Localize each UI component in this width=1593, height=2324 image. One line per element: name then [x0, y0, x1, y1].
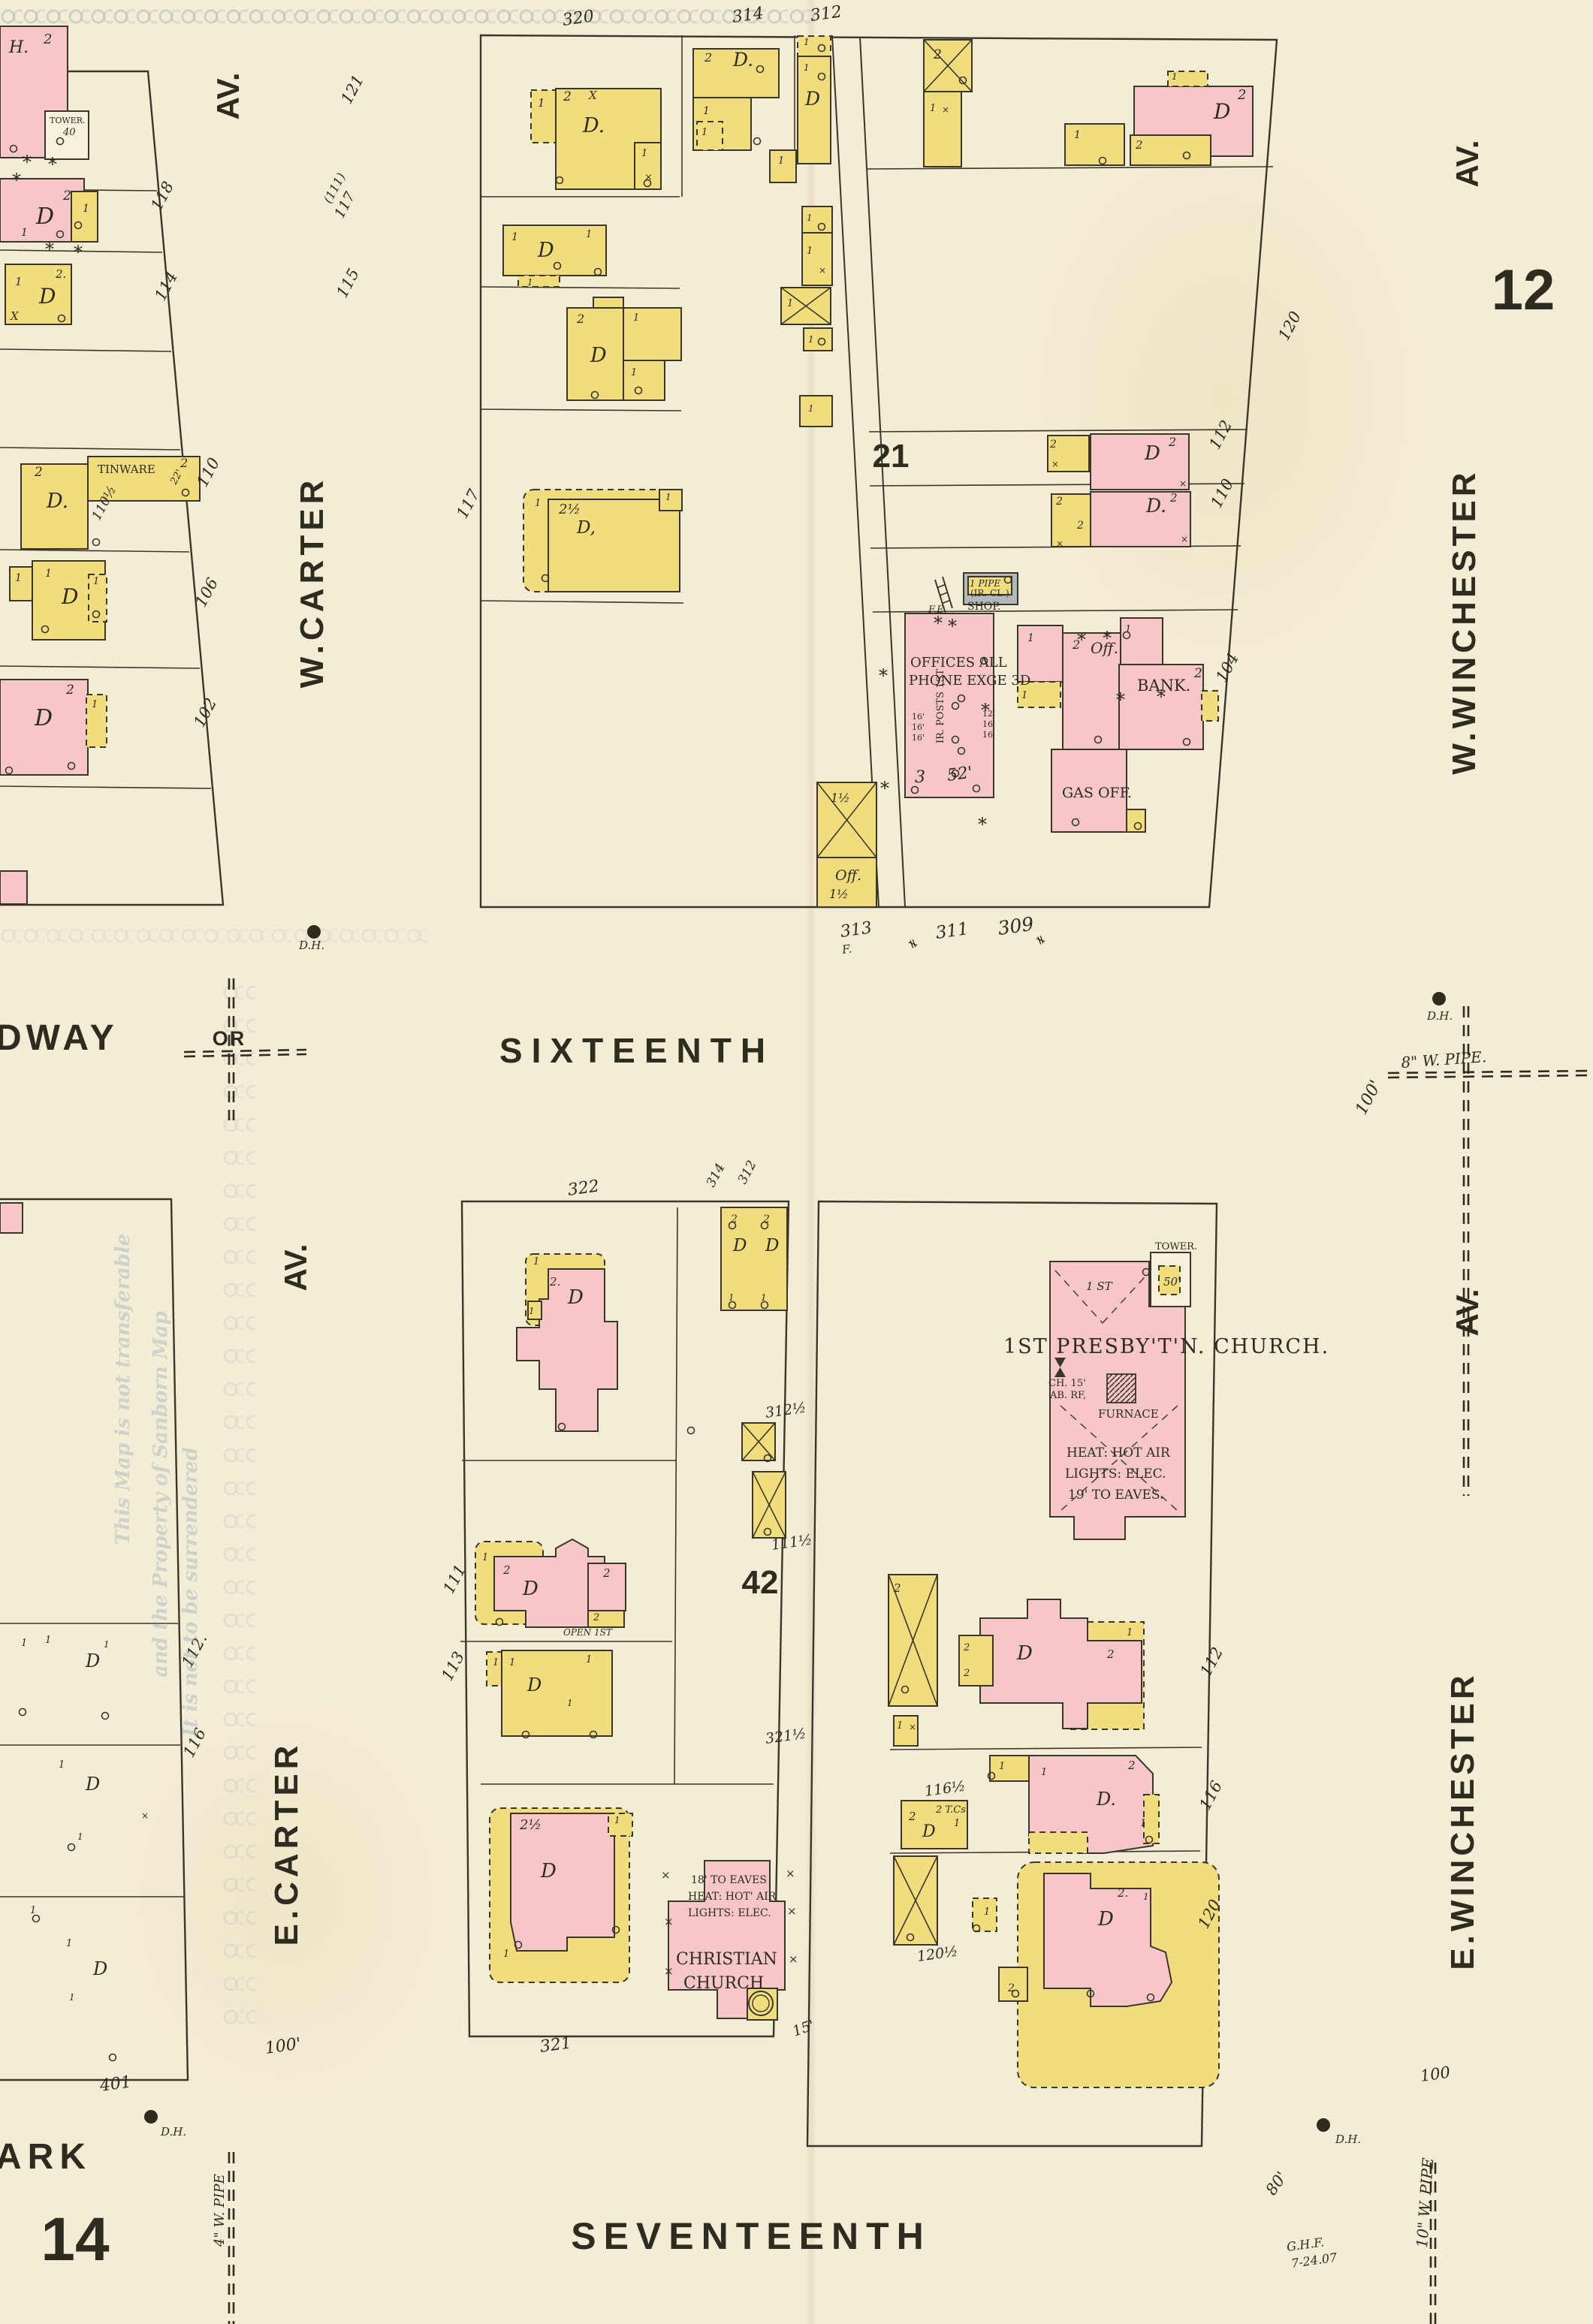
map-annotation: PHONE EXGE 3D: [909, 673, 1030, 689]
building-label: 1: [665, 492, 671, 502]
building-label: 2: [1106, 1647, 1115, 1661]
lot-number: 120: [1275, 309, 1305, 344]
lot-number: 321: [539, 2033, 572, 2057]
street-label: AV.: [1450, 1289, 1485, 1336]
ghost-text: It is not to be surrendered: [180, 1447, 202, 1738]
chimney-circle: [688, 1427, 695, 1434]
map-annotation: 19' TO EAVES.: [1068, 1488, 1163, 1503]
building: [593, 297, 623, 308]
map-annotation: 2: [1193, 666, 1202, 681]
building-label: 1: [567, 1698, 573, 1708]
lot-line: [890, 1747, 1202, 1750]
building-label: 1: [778, 155, 784, 167]
lot-number: 116: [1196, 1778, 1226, 1813]
map-annotation: (IR. CL.): [970, 588, 1009, 598]
page-number: 12: [1492, 258, 1555, 322]
building-label: 1: [69, 1992, 75, 2003]
map-annotation: 18' TO EAVES: [691, 1874, 767, 1886]
building-label: 1: [45, 1635, 51, 1646]
map-annotation: 16': [982, 730, 995, 740]
building-label: 1: [104, 1639, 110, 1650]
building-label: 1: [535, 498, 541, 509]
map-annotation: 2 T.Cs.: [935, 1804, 969, 1816]
building-label: 1: [897, 1720, 903, 1732]
hydrant-dot: [1432, 992, 1446, 1005]
building-label: D: [92, 1958, 107, 1979]
map-annotation: D.H.: [1426, 1009, 1453, 1023]
building-label: D: [804, 88, 820, 110]
map-annotation: OPEN 1ST: [563, 1627, 613, 1638]
hydrant-dot: [144, 2110, 158, 2124]
building-label: 1: [92, 699, 98, 710]
lot-number: 116½: [924, 1778, 967, 1800]
post-mark: *: [48, 154, 57, 175]
building-label: D: [34, 705, 53, 731]
building-label: 2: [593, 1612, 599, 1623]
building-label: 1: [1140, 1818, 1146, 1829]
lot-number: 311: [934, 919, 970, 943]
lot-number: 114: [151, 269, 181, 304]
building-label: D.: [582, 114, 605, 137]
lot-number: 314: [731, 4, 765, 27]
map-annotation: 8" W. PIPE.: [1401, 1047, 1487, 1072]
map-annotation: LIGHTS: ELEC.: [1065, 1466, 1166, 1482]
lot-number: 100': [1352, 1078, 1386, 1118]
map-annotation: IR. POSTS 1ST: [935, 669, 946, 743]
map-annotation: 16': [912, 712, 925, 722]
page-number: 21: [873, 438, 910, 475]
lot-line: [481, 287, 680, 288]
hydrant-dot: [1317, 2118, 1330, 2132]
building-label: 1: [1027, 632, 1034, 644]
post-mark: *: [45, 239, 54, 260]
building-label: ×: [942, 104, 949, 115]
building-label: 1: [804, 37, 810, 47]
building-label: ×: [1179, 478, 1187, 489]
building-label: 2: [62, 188, 71, 203]
building-label: 1: [30, 1905, 36, 1916]
building-label: 1: [45, 568, 52, 580]
street-label: OR: [213, 1027, 246, 1050]
building: [71, 191, 98, 242]
post-mark: *: [1103, 628, 1112, 649]
building-label: ×: [819, 265, 826, 276]
lot-number: 112: [1196, 1644, 1226, 1680]
building-label: 2½: [519, 1817, 542, 1833]
building-label: 2: [1076, 520, 1084, 532]
building: [608, 1813, 632, 1836]
building-label: 1: [83, 203, 89, 215]
lot-line: [481, 601, 683, 603]
chimney-circle: [20, 1709, 26, 1716]
lot-number: 100': [264, 2034, 302, 2057]
building-label: 2.: [55, 267, 66, 281]
lot-number: 104: [1212, 650, 1242, 686]
building-label: D.: [732, 49, 753, 71]
building-label: 1: [527, 277, 533, 288]
lot-number: 113: [438, 1649, 468, 1684]
lot-number: 309: [997, 913, 1035, 939]
lot-number: 80': [1262, 2168, 1290, 2198]
building-label: 1: [15, 275, 23, 288]
building: [511, 1813, 614, 1951]
chimney-circle: [754, 138, 761, 145]
post-mark: *: [948, 616, 957, 637]
wall-x-mark: ×: [664, 1915, 674, 1928]
building-label: 1: [1143, 1891, 1149, 1902]
water-pipe-line: [184, 1054, 306, 1057]
wall-x-mark: ×: [786, 1867, 795, 1880]
lot-number: 312: [809, 2, 843, 26]
lot-line: [869, 430, 1247, 432]
map-annotation: TOWER.: [50, 116, 85, 125]
street-label: W.WINCHESTER: [1446, 469, 1483, 774]
map-annotation: 1 ST: [1086, 1280, 1113, 1293]
street-label: AV.: [278, 1243, 313, 1291]
building-label: 1: [808, 334, 814, 345]
building-label: D: [1097, 1908, 1114, 1931]
lot-line: [873, 610, 1238, 612]
map-annotation: 40: [62, 127, 76, 138]
lot-number: 15': [790, 2017, 816, 2040]
building: [518, 276, 560, 287]
map-annotation: Off.: [835, 867, 861, 884]
building-label: 2: [762, 1213, 770, 1225]
lot-line: [0, 349, 171, 351]
water-pipe-line: [1388, 1071, 1593, 1073]
building-label: H.: [8, 38, 29, 57]
building-label: 1: [807, 246, 813, 257]
map-annotation: 1ST PRESBY'T'N. CHURCH.: [1003, 1335, 1329, 1358]
map-annotation: 4" W. PIPE: [212, 2174, 228, 2247]
building-label: 1: [482, 1552, 488, 1563]
building-label: 1: [509, 1657, 515, 1668]
building-label: D: [522, 1578, 539, 1600]
water-pipe-line: [184, 1050, 306, 1052]
map-annotation: 1½: [829, 887, 849, 901]
ladder-rung: [937, 585, 945, 588]
lot-number: F.: [840, 942, 852, 957]
building-label: D.: [1096, 1789, 1116, 1810]
map-annotation: D.H.: [298, 939, 324, 952]
building-label: D: [35, 203, 54, 230]
building-label: 2: [1055, 496, 1063, 508]
building-label: 1: [493, 1657, 499, 1668]
post-mark: *: [1077, 629, 1086, 650]
building-label: 2: [963, 1668, 970, 1679]
building-label: 1: [808, 403, 814, 414]
map-annotation: 1½: [831, 791, 850, 805]
building-label: 2: [908, 1810, 916, 1823]
post-mark: *: [879, 665, 888, 686]
building-label: 1: [511, 231, 518, 243]
building-label: D,: [576, 518, 596, 538]
lot-line: [0, 666, 200, 668]
sanborn-map-sheet: SIXTEENTHSEVENTEENTHDWAYARKORAV.W.CARTER…: [0, 0, 1593, 2324]
building-label: 1: [787, 298, 793, 309]
lot-number: 321½: [765, 1726, 807, 1747]
ghost-text: This Map is not transferable: [112, 1234, 134, 1545]
post-mark: *: [23, 152, 32, 173]
building-label: 1: [984, 1907, 990, 1918]
hydrant-dot: [307, 925, 321, 939]
building-label: D: [1016, 1642, 1033, 1665]
street-label: DWAY: [0, 1018, 119, 1058]
building-label: 1: [77, 1831, 83, 1842]
building-label: 2: [1127, 1759, 1136, 1772]
building-label: 1: [586, 1654, 592, 1665]
wall-x-mark: ×: [787, 1904, 797, 1918]
map-annotation: TINWARE: [98, 463, 155, 476]
building-label: 2: [502, 1563, 511, 1577]
chimney-circle: [110, 2054, 116, 2061]
building-label: D: [537, 239, 554, 262]
street-label: SIXTEENTH: [499, 1031, 774, 1070]
building-label: 1: [586, 229, 592, 240]
chimney-circle: [102, 1713, 109, 1720]
furnace-symbol: [1107, 1374, 1136, 1403]
building-label: D.: [46, 490, 68, 513]
building: [798, 56, 831, 164]
building-label: 2: [933, 47, 942, 62]
building-label: 1: [1127, 1627, 1133, 1638]
map-annotation: 1 PIPE: [970, 578, 1000, 589]
map-annotation: CHRISTIAN: [676, 1950, 777, 1969]
map-annotation: 16': [912, 722, 925, 732]
building-label: 1: [930, 103, 936, 114]
building-label: 2.: [1117, 1886, 1128, 1900]
building: [1029, 1832, 1088, 1853]
building-label: 1: [729, 1292, 735, 1303]
building-label: 1: [1074, 129, 1081, 141]
building: [0, 1203, 23, 1233]
building-label: 2: [963, 1642, 970, 1653]
building-label: 1: [614, 1815, 620, 1825]
chimney-circle: [93, 539, 100, 546]
map-annotation: GAS OFF.: [1062, 785, 1132, 801]
building-label: 2: [1135, 138, 1143, 152]
lot-number: 312½: [765, 1400, 807, 1421]
building-label: ×: [1181, 534, 1188, 544]
building-label: D: [590, 344, 607, 367]
page-number: 42: [742, 1564, 779, 1601]
building-label: X: [588, 89, 598, 102]
building-label: 2: [563, 89, 572, 104]
map-annotation: FURNACE: [1098, 1407, 1159, 1421]
building-label: ×: [1056, 538, 1064, 549]
lot-number: 320: [561, 7, 595, 30]
building: [802, 233, 832, 285]
lot-number: 120½: [916, 1943, 959, 1965]
building-label: 1: [59, 1759, 65, 1771]
building-label: D: [732, 1236, 747, 1255]
building: [800, 396, 832, 427]
building-label: X: [10, 309, 20, 323]
lot-number: 312: [735, 1158, 760, 1186]
ladder-rung: [940, 592, 948, 595]
building-label: 1: [761, 1292, 767, 1303]
building-label: 1: [633, 312, 639, 324]
water-pipe-line: [1388, 1075, 1593, 1078]
post-mark: *: [1157, 686, 1166, 707]
building: [798, 36, 831, 56]
building-label: 1: [529, 1306, 535, 1316]
building-label: 1: [804, 62, 810, 73]
building-label: 1: [21, 227, 28, 239]
survey-tick: ≠: [904, 936, 922, 951]
building-label: ×: [644, 172, 653, 183]
lot-number: 314: [704, 1161, 729, 1189]
street-label: E.WINCHESTER: [1444, 1671, 1481, 1970]
map-annotation: CH. 15': [1048, 1378, 1086, 1389]
survey-tick: ≠: [1031, 933, 1049, 948]
building-label: 1: [21, 1638, 27, 1649]
building-label: 1: [703, 105, 710, 117]
building-label: 1: [1125, 624, 1131, 635]
lot-number: 322: [566, 1177, 600, 1200]
building-label: D: [540, 1860, 557, 1882]
building-label: 2: [1168, 435, 1176, 449]
ghost-text: and the Property of Sanborn Map: [149, 1311, 172, 1677]
wall-x-mark: ×: [789, 1952, 798, 1966]
building-label: 2: [730, 1213, 738, 1225]
map-annotation: CHURCH: [683, 1974, 764, 1993]
building-label: 2: [1049, 439, 1057, 451]
building-label: 2: [602, 1566, 611, 1580]
map-annotation: D.H.: [1335, 2133, 1361, 2146]
building-label: 2: [704, 50, 712, 65]
street-label: AV.: [210, 72, 246, 119]
map-annotation: 2: [180, 456, 188, 470]
post-mark: *: [934, 613, 943, 634]
building-label: 2: [65, 683, 74, 698]
building-label: D: [922, 1822, 936, 1841]
building-label: 1: [807, 213, 813, 223]
building: [623, 308, 681, 360]
lot-number: 102: [190, 695, 220, 731]
map-annotation: 52': [946, 763, 973, 785]
building-label: 2: [34, 465, 43, 480]
map-annotation: TOWER.: [1155, 1241, 1197, 1252]
lot-line: [674, 1207, 677, 1784]
wall-x-mark: ×: [664, 1964, 674, 1978]
map-annotation: G.H.F.: [1286, 2235, 1325, 2254]
map-annotation: OFFICES ALL: [910, 655, 1007, 671]
map-annotation: D.H.: [160, 2125, 186, 2139]
building-label: 1: [533, 1256, 539, 1267]
lot-number: 401: [98, 2072, 132, 2096]
building-label: ×: [909, 1722, 916, 1732]
map-annotation: SHOP.: [967, 601, 1000, 613]
lot-number: 118: [147, 179, 177, 214]
building-label: 2: [1007, 1982, 1015, 1994]
lot-number: 106: [192, 575, 222, 610]
page-number: 14: [41, 2205, 110, 2274]
building-label: 1: [999, 1761, 1005, 1772]
lot-number: 117: [453, 486, 483, 521]
building-label: 2.: [549, 1275, 560, 1289]
building: [990, 1756, 1029, 1781]
map-annotation: 16': [912, 733, 925, 743]
building-label: 2½: [558, 502, 581, 517]
building-label: D.: [1145, 495, 1166, 517]
building-label: 1: [701, 127, 707, 138]
building-label: 2: [893, 1581, 901, 1595]
street-label: SEVENTEENTH: [571, 2215, 931, 2257]
street-label: E.CARTER: [268, 1741, 305, 1946]
map-annotation: HEAT: HOT' AIR: [688, 1891, 777, 1903]
building-label: D: [526, 1674, 542, 1696]
lot-line: [481, 409, 681, 411]
street-label: AV.: [1450, 140, 1485, 187]
map-annotation: 7-24.07: [1290, 2250, 1338, 2270]
map-annotation: 50': [1163, 1275, 1181, 1289]
lot-line: [0, 448, 180, 450]
building-label: 1: [538, 96, 545, 110]
building-label: 1: [1172, 71, 1178, 82]
lot-number: 112: [1205, 417, 1235, 453]
building: [623, 360, 665, 400]
building-label: D: [765, 1236, 779, 1255]
street-label: W.CARTER: [294, 476, 330, 689]
ladder-rung: [943, 601, 950, 604]
building-label: 1: [66, 1938, 72, 1949]
building-label: 2: [43, 32, 52, 47]
lot-line: [0, 550, 189, 552]
lot-line: [0, 786, 211, 788]
post-mark: *: [880, 778, 889, 799]
building-label: 2: [1237, 87, 1246, 103]
building-label: 1: [1021, 690, 1027, 701]
map-annotation: AB. RF,: [1049, 1390, 1086, 1401]
building-label: ×: [1051, 459, 1059, 469]
building-label: 1: [954, 1818, 960, 1829]
wall-x-mark: ×: [661, 1868, 671, 1882]
building-label: D: [1213, 99, 1230, 124]
building-label: 2: [576, 312, 584, 326]
lot-number: 313: [839, 918, 873, 942]
building-label: 2: [1169, 491, 1178, 505]
street-label: ARK: [0, 2137, 92, 2177]
lot-number: 121: [337, 72, 367, 107]
building-label: D: [567, 1286, 584, 1309]
map-canvas: SIXTEENTHSEVENTEENTHDWAYARKORAV.W.CARTER…: [0, 0, 1593, 2324]
post-mark: *: [978, 814, 987, 835]
building-label: 1: [631, 367, 637, 378]
map-annotation: 10" W. PIPE: [1413, 2157, 1437, 2248]
map-annotation: 3: [915, 768, 925, 787]
post-mark: *: [1116, 689, 1125, 710]
building-label: D: [38, 284, 56, 309]
post-mark: *: [74, 242, 83, 263]
lot-number: 110: [1207, 476, 1237, 511]
building-label: 1: [1041, 1767, 1047, 1778]
building-label: D: [85, 1650, 100, 1671]
chimney-circle: [68, 1844, 75, 1851]
building-label: D: [61, 584, 78, 609]
building: [502, 1650, 612, 1736]
building: [1202, 691, 1218, 721]
lot-number: 115: [333, 266, 363, 301]
building-label: 1: [503, 1949, 509, 1960]
lot-number: 100: [1419, 2063, 1451, 2085]
post-mark: *: [981, 700, 990, 721]
building-label: D: [85, 1774, 100, 1795]
building-label: 1: [93, 576, 99, 587]
building-label: D: [1144, 442, 1160, 465]
building-label: 1: [641, 148, 647, 159]
map-annotation: LIGHTS: ELEC.: [688, 1907, 771, 1919]
